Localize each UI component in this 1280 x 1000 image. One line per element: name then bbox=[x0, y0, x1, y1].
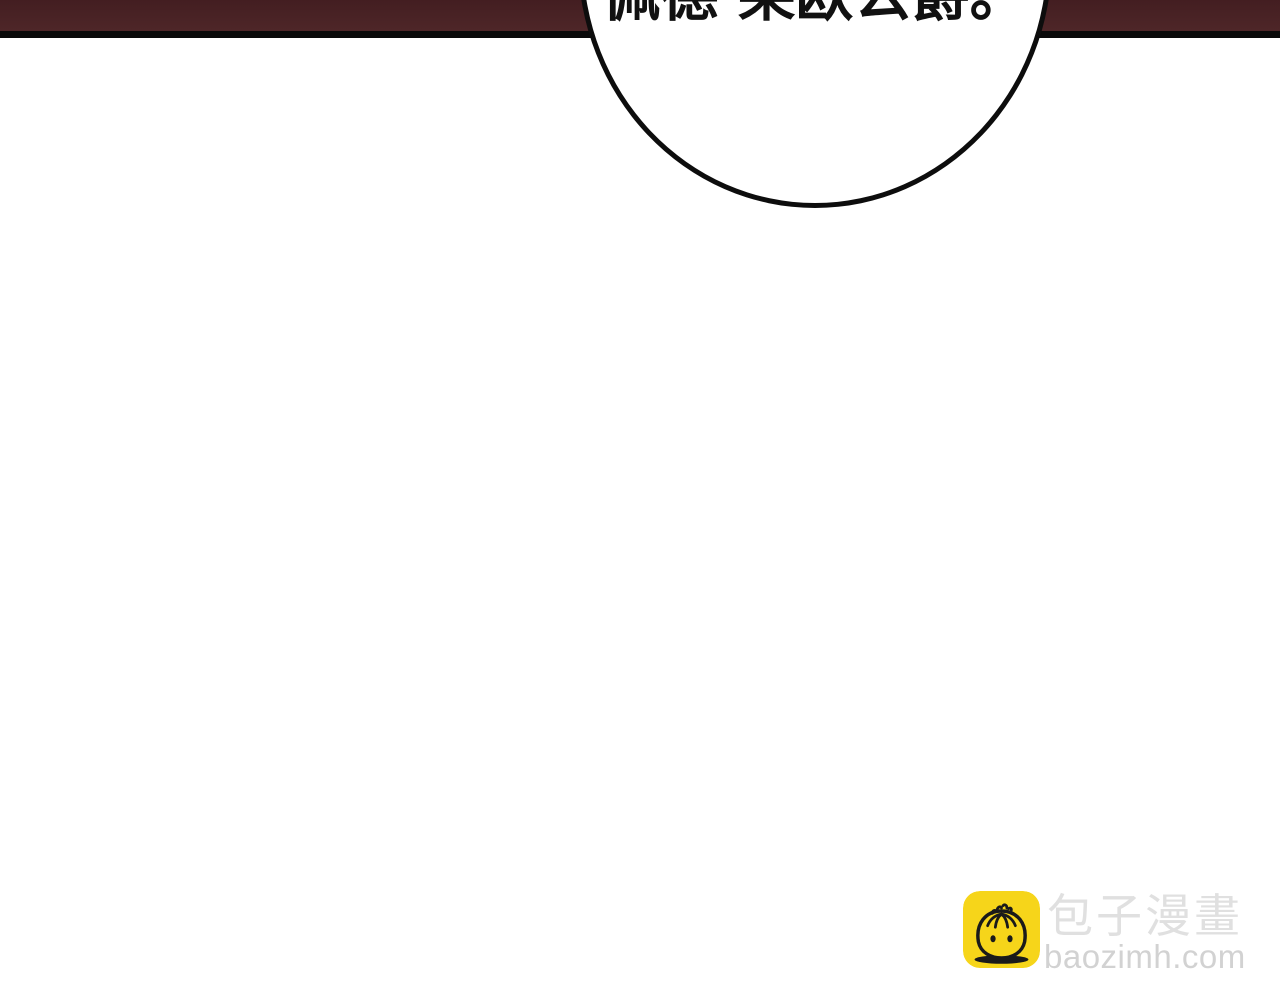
comic-page: 佩德·莱欧公爵。 bbox=[0, 0, 1280, 1000]
speech-bubble-text: 佩德·莱欧公爵。 bbox=[583, 0, 1047, 27]
brand-name-cn: 包子漫畫 bbox=[1047, 893, 1243, 939]
speech-bubble bbox=[578, 0, 1052, 208]
bun-outline bbox=[978, 911, 1025, 958]
site-watermark: 包子漫畫 baozimh.com bbox=[963, 891, 1263, 981]
bun-left-eye bbox=[990, 935, 995, 942]
baozi-bun-icon bbox=[963, 891, 1040, 968]
bun-right-eye bbox=[1007, 935, 1012, 942]
brand-url: baozimh.com bbox=[1044, 940, 1246, 973]
